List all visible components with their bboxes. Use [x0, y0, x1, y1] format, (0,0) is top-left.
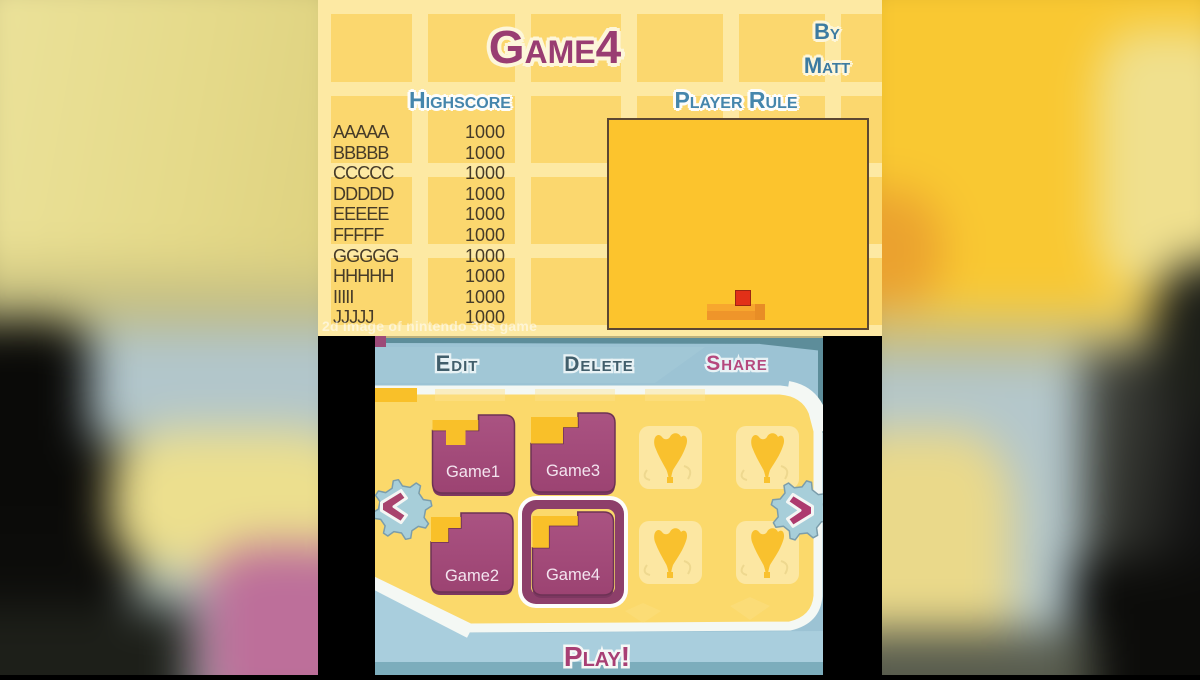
svg-text:Edit: Edit [436, 351, 479, 376]
svg-text:Game3: Game3 [546, 462, 600, 480]
svg-text:Game4: Game4 [546, 566, 600, 584]
svg-text:Game2: Game2 [445, 567, 499, 585]
svg-text:Delete: Delete [564, 353, 634, 376]
svg-text:Game1: Game1 [446, 463, 500, 481]
svg-text:Share: Share [706, 352, 768, 375]
svg-text:Play!: Play! [564, 641, 630, 672]
